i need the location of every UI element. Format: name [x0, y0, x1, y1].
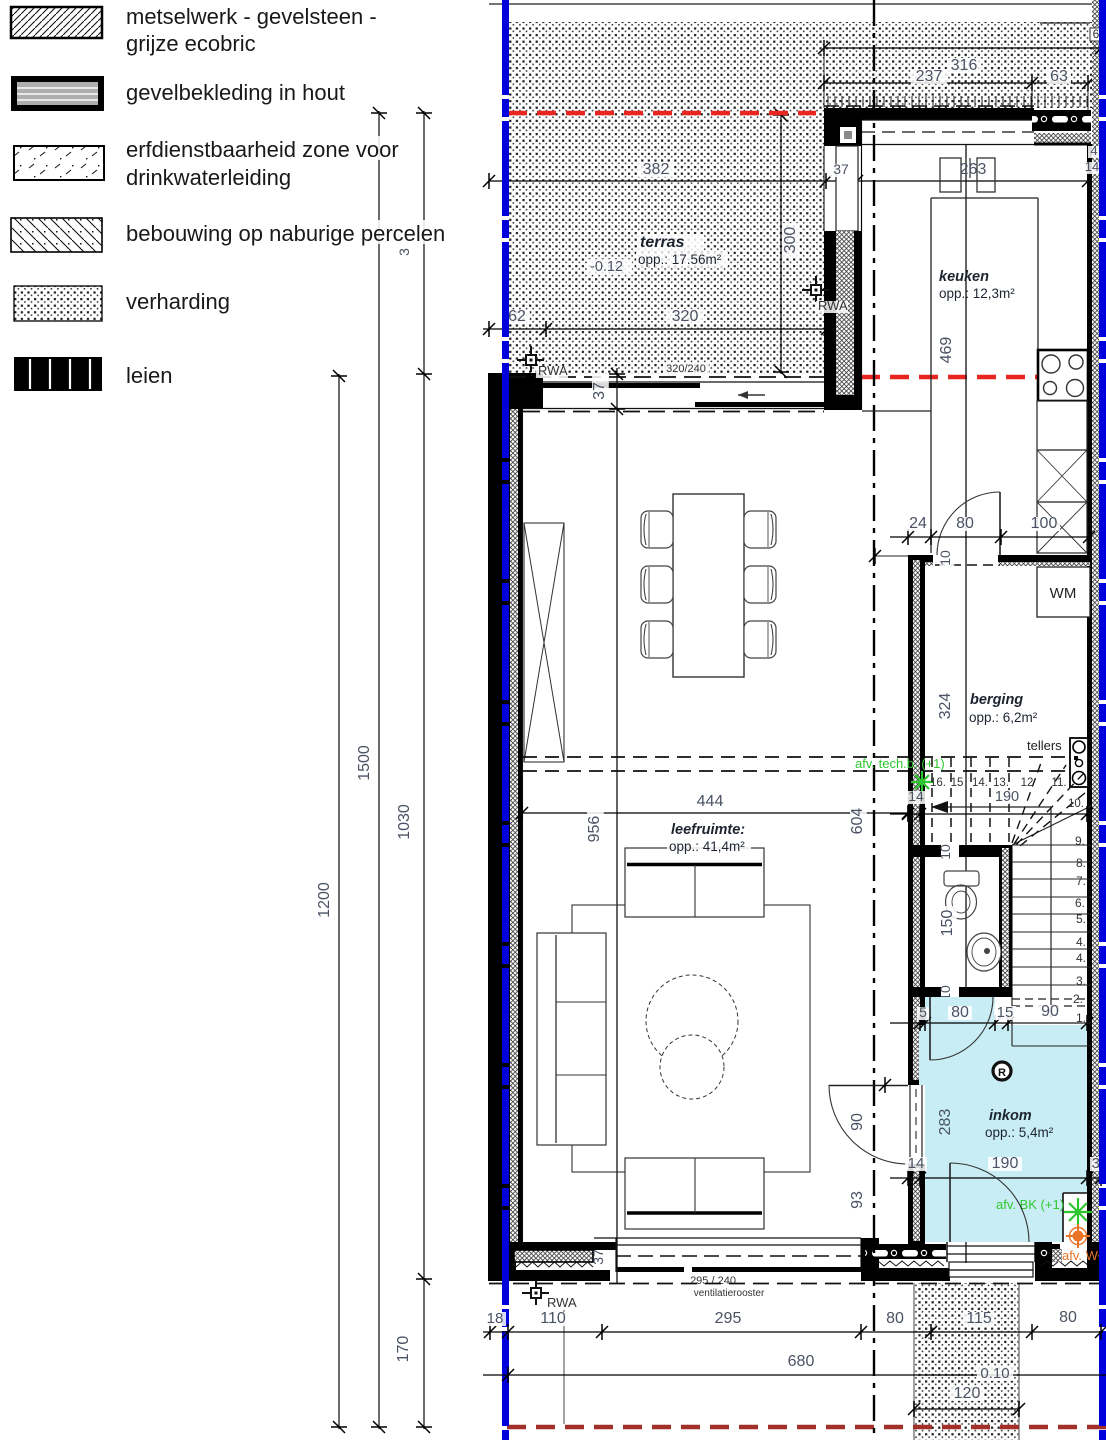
svg-text:80: 80 — [951, 1004, 969, 1021]
svg-text:drinkwaterleiding: drinkwaterleiding — [126, 165, 291, 190]
svg-text:13.: 13. — [993, 777, 1009, 789]
svg-text:-0.12: -0.12 — [590, 259, 623, 275]
svg-text:320: 320 — [672, 308, 699, 325]
svg-text:afv. BK (+1): afv. BK (+1) — [996, 1197, 1064, 1212]
svg-text:18: 18 — [487, 1310, 504, 1327]
svg-text:316: 316 — [951, 57, 978, 74]
svg-text:6: 6 — [1093, 27, 1100, 41]
svg-text:80: 80 — [956, 515, 974, 532]
svg-text:tellers: tellers — [1027, 738, 1062, 753]
svg-text:5: 5 — [919, 1004, 927, 1020]
svg-text:37: 37 — [590, 1249, 606, 1265]
svg-text:bebouwing op naburige percelen: bebouwing op naburige percelen — [126, 221, 445, 246]
svg-text:324: 324 — [937, 693, 954, 720]
svg-text:R: R — [998, 1067, 1006, 1079]
svg-text:RWA: RWA — [547, 1295, 577, 1310]
svg-text:14: 14 — [908, 1155, 925, 1172]
svg-text:6.: 6. — [1075, 896, 1085, 910]
svg-text:300: 300 — [782, 227, 799, 254]
svg-text:295: 295 — [715, 1310, 742, 1327]
svg-text:RWA: RWA — [818, 298, 848, 313]
svg-text:680: 680 — [788, 1353, 815, 1370]
svg-text:RWA: RWA — [538, 363, 568, 378]
svg-text:190: 190 — [992, 1155, 1019, 1172]
svg-text:237: 237 — [916, 68, 943, 85]
svg-text:150: 150 — [939, 910, 956, 937]
svg-text:110: 110 — [540, 1310, 566, 1327]
svg-text:5.: 5. — [1076, 912, 1086, 926]
svg-text:3: 3 — [396, 248, 412, 256]
svg-text:3.: 3. — [1076, 974, 1086, 988]
svg-text:opp.: 5,4m²: opp.: 5,4m² — [985, 1125, 1054, 1140]
svg-text:10: 10 — [937, 550, 953, 566]
svg-text:opp.: 12,3m²: opp.: 12,3m² — [939, 286, 1015, 301]
svg-text:ventilatierooster: ventilatierooster — [694, 1288, 765, 1299]
svg-text:320/240: 320/240 — [666, 363, 706, 375]
svg-text:leien: leien — [126, 363, 172, 388]
svg-text:WM: WM — [1050, 585, 1077, 602]
svg-text:erfdienstbaarheid zone voor: erfdienstbaarheid zone voor — [126, 137, 399, 162]
svg-text:62: 62 — [508, 308, 526, 325]
svg-text:gevelbekleding in hout: gevelbekleding in hout — [126, 80, 345, 105]
svg-text:10.: 10. — [1068, 798, 1084, 810]
svg-text:80: 80 — [1059, 1309, 1077, 1326]
svg-text:469: 469 — [938, 337, 955, 364]
svg-text:444: 444 — [697, 793, 724, 810]
svg-text:terras: terras — [640, 234, 685, 251]
svg-text:63: 63 — [1050, 68, 1068, 85]
svg-text:15: 15 — [951, 777, 964, 789]
svg-text:90: 90 — [1041, 1003, 1059, 1020]
svg-text:14.: 14. — [972, 777, 988, 789]
svg-text:382: 382 — [643, 161, 670, 178]
svg-text:115: 115 — [966, 1310, 992, 1327]
svg-text:4.: 4. — [1076, 935, 1086, 949]
svg-text:leefruimte:: leefruimte: — [671, 822, 745, 838]
svg-text:295 / 240: 295 / 240 — [690, 1275, 736, 1287]
svg-text:4.: 4. — [1076, 951, 1086, 965]
svg-text:4: 4 — [1090, 143, 1097, 158]
svg-text:15: 15 — [997, 1004, 1014, 1021]
svg-text:170: 170 — [395, 1336, 412, 1363]
svg-text:16.: 16. — [930, 777, 946, 789]
svg-text:80: 80 — [886, 1310, 904, 1327]
svg-text:283: 283 — [937, 1109, 954, 1136]
svg-text:opp.: 6,2m²: opp.: 6,2m² — [969, 710, 1038, 725]
svg-text:93: 93 — [849, 1191, 866, 1209]
svg-text:8.: 8. — [1076, 856, 1086, 870]
svg-text:grijze ecobric: grijze ecobric — [126, 31, 256, 56]
svg-text:120: 120 — [954, 1385, 981, 1402]
svg-text:37: 37 — [591, 382, 608, 400]
svg-text:604: 604 — [849, 808, 866, 835]
svg-text:2.: 2. — [1073, 992, 1083, 1006]
svg-text:keuken: keuken — [939, 269, 989, 285]
svg-text:1030: 1030 — [396, 804, 413, 840]
svg-text:14: 14 — [908, 788, 924, 804]
svg-text:11.: 11. — [1051, 777, 1066, 789]
svg-text:0.10: 0.10 — [980, 1365, 1009, 1382]
svg-text:inkom: inkom — [989, 1108, 1032, 1124]
svg-text:190: 190 — [995, 789, 1019, 805]
svg-text:263: 263 — [960, 161, 987, 178]
svg-text:1200: 1200 — [316, 882, 333, 918]
svg-text:956: 956 — [586, 816, 603, 843]
svg-text:opp.: 41,4m²: opp.: 41,4m² — [669, 839, 745, 854]
svg-text:9.: 9. — [1075, 834, 1085, 848]
svg-text:metselwerk - gevelsteen -: metselwerk - gevelsteen - — [126, 4, 377, 29]
svg-text:1500: 1500 — [356, 745, 373, 781]
svg-text:37: 37 — [833, 161, 849, 177]
svg-text:100: 100 — [1031, 515, 1058, 532]
svg-text:90: 90 — [849, 1113, 866, 1131]
svg-text:berging: berging — [970, 692, 1023, 708]
svg-text:12: 12 — [1021, 777, 1034, 789]
svg-text:10: 10 — [937, 844, 953, 860]
svg-text:opp.: 17.56m²: opp.: 17.56m² — [638, 252, 722, 267]
svg-text:7.: 7. — [1076, 874, 1086, 888]
svg-text:verharding: verharding — [126, 289, 230, 314]
svg-text:24: 24 — [909, 515, 927, 532]
svg-text:14: 14 — [1085, 159, 1099, 174]
